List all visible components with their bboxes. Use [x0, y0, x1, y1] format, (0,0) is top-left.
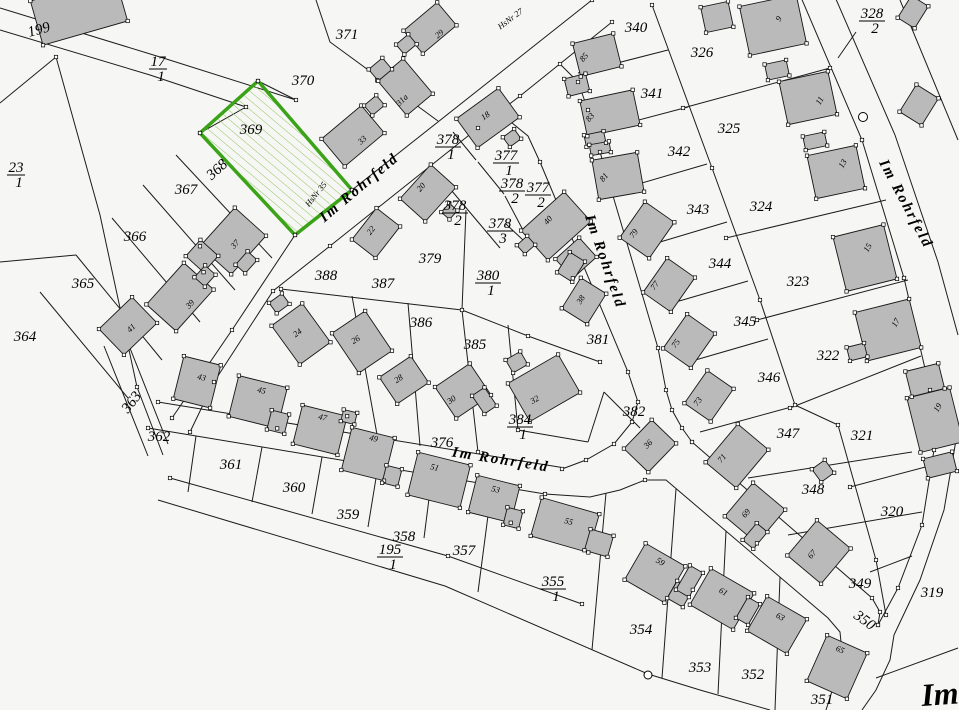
parcel-label-379: 379: [418, 251, 442, 267]
parcel-label-341: 341: [640, 86, 664, 102]
svg-text:1: 1: [519, 427, 527, 443]
parcel-label-369: 369: [239, 122, 263, 138]
parcel-label-353: 353: [688, 660, 712, 676]
svg-text:378: 378: [500, 176, 524, 192]
parcel-label-351: 351: [810, 692, 834, 708]
svg-text:378: 378: [436, 132, 460, 148]
cadastral-map-viewer: 199 371 370 369 368 367 366 365 364 363 …: [0, 0, 959, 710]
parcel-label-381: 381: [586, 332, 610, 348]
parcel-label-322: 322: [816, 348, 840, 364]
parcel-label-376: 376: [430, 435, 454, 451]
svg-text:384: 384: [508, 412, 532, 428]
parcel-label-370: 370: [291, 73, 315, 89]
svg-text:3: 3: [498, 231, 507, 247]
parcel-label-342: 342: [667, 144, 691, 160]
parcel-label-365: 365: [71, 276, 95, 292]
svg-text:1: 1: [389, 557, 397, 573]
parcel-label-343: 343: [686, 202, 710, 218]
parcel-label-346: 346: [757, 370, 781, 386]
svg-text:2: 2: [871, 21, 879, 37]
parcel-label-345: 345: [733, 314, 757, 330]
svg-text:378: 378: [488, 216, 512, 232]
parcel-label-352: 352: [741, 667, 765, 683]
parcel-label-323: 323: [786, 274, 810, 290]
parcel-label-357: 357: [452, 543, 477, 559]
svg-text:23: 23: [9, 160, 24, 176]
svg-text:17: 17: [151, 54, 168, 70]
parcel-label-382: 382: [622, 404, 646, 420]
svg-text:195: 195: [379, 542, 402, 558]
svg-text:355: 355: [541, 574, 565, 590]
parcel-label-354: 354: [629, 622, 653, 638]
svg-text:377: 377: [494, 148, 519, 164]
parcel-label-360: 360: [282, 480, 306, 496]
street-name-partial: Im: [919, 674, 959, 710]
svg-text:2: 2: [511, 191, 519, 207]
parcel-label-348: 348: [801, 482, 825, 498]
parcel-label-321: 321: [850, 428, 874, 444]
parcel-label-361: 361: [219, 457, 243, 473]
parcel-label-359: 359: [336, 507, 360, 523]
svg-text:380: 380: [476, 268, 500, 284]
svg-text:2: 2: [454, 213, 462, 229]
manhole-symbol: [859, 113, 868, 122]
svg-text:328: 328: [860, 6, 884, 22]
parcel-label-362: 362: [147, 429, 171, 445]
parcel-label-349: 349: [848, 576, 872, 592]
svg-text:2: 2: [537, 195, 545, 211]
map-canvas[interactable]: 199 371 370 369 368 367 366 365 364 363 …: [0, 0, 959, 710]
parcel-label-340: 340: [624, 20, 648, 36]
svg-text:377: 377: [526, 180, 551, 196]
parcel-label-371: 371: [335, 27, 359, 43]
parcel-label-385: 385: [463, 337, 487, 353]
parcel-label-387: 387: [371, 276, 396, 292]
svg-text:1: 1: [487, 283, 495, 299]
parcel-label-325: 325: [717, 121, 741, 137]
building-shed: [701, 1, 734, 32]
parcel-label-388: 388: [314, 268, 338, 284]
parcel-label-367: 367: [174, 182, 199, 198]
parcel-label-344: 344: [708, 256, 732, 272]
parcel-label-347: 347: [776, 426, 801, 442]
manhole-symbol: [644, 671, 652, 679]
svg-text:378: 378: [443, 198, 467, 214]
svg-text:1: 1: [15, 175, 23, 191]
parcel-label-324: 324: [749, 199, 773, 215]
parcel-label-319: 319: [920, 585, 944, 601]
svg-text:1: 1: [447, 147, 455, 163]
parcel-label-366: 366: [123, 229, 147, 245]
parcel-label-386: 386: [409, 315, 433, 331]
svg-text:1: 1: [552, 589, 560, 605]
svg-text:1: 1: [157, 69, 165, 85]
parcel-label-364: 364: [13, 329, 37, 345]
parcel-label-320: 320: [880, 504, 904, 520]
parcel-label-326: 326: [690, 45, 714, 61]
